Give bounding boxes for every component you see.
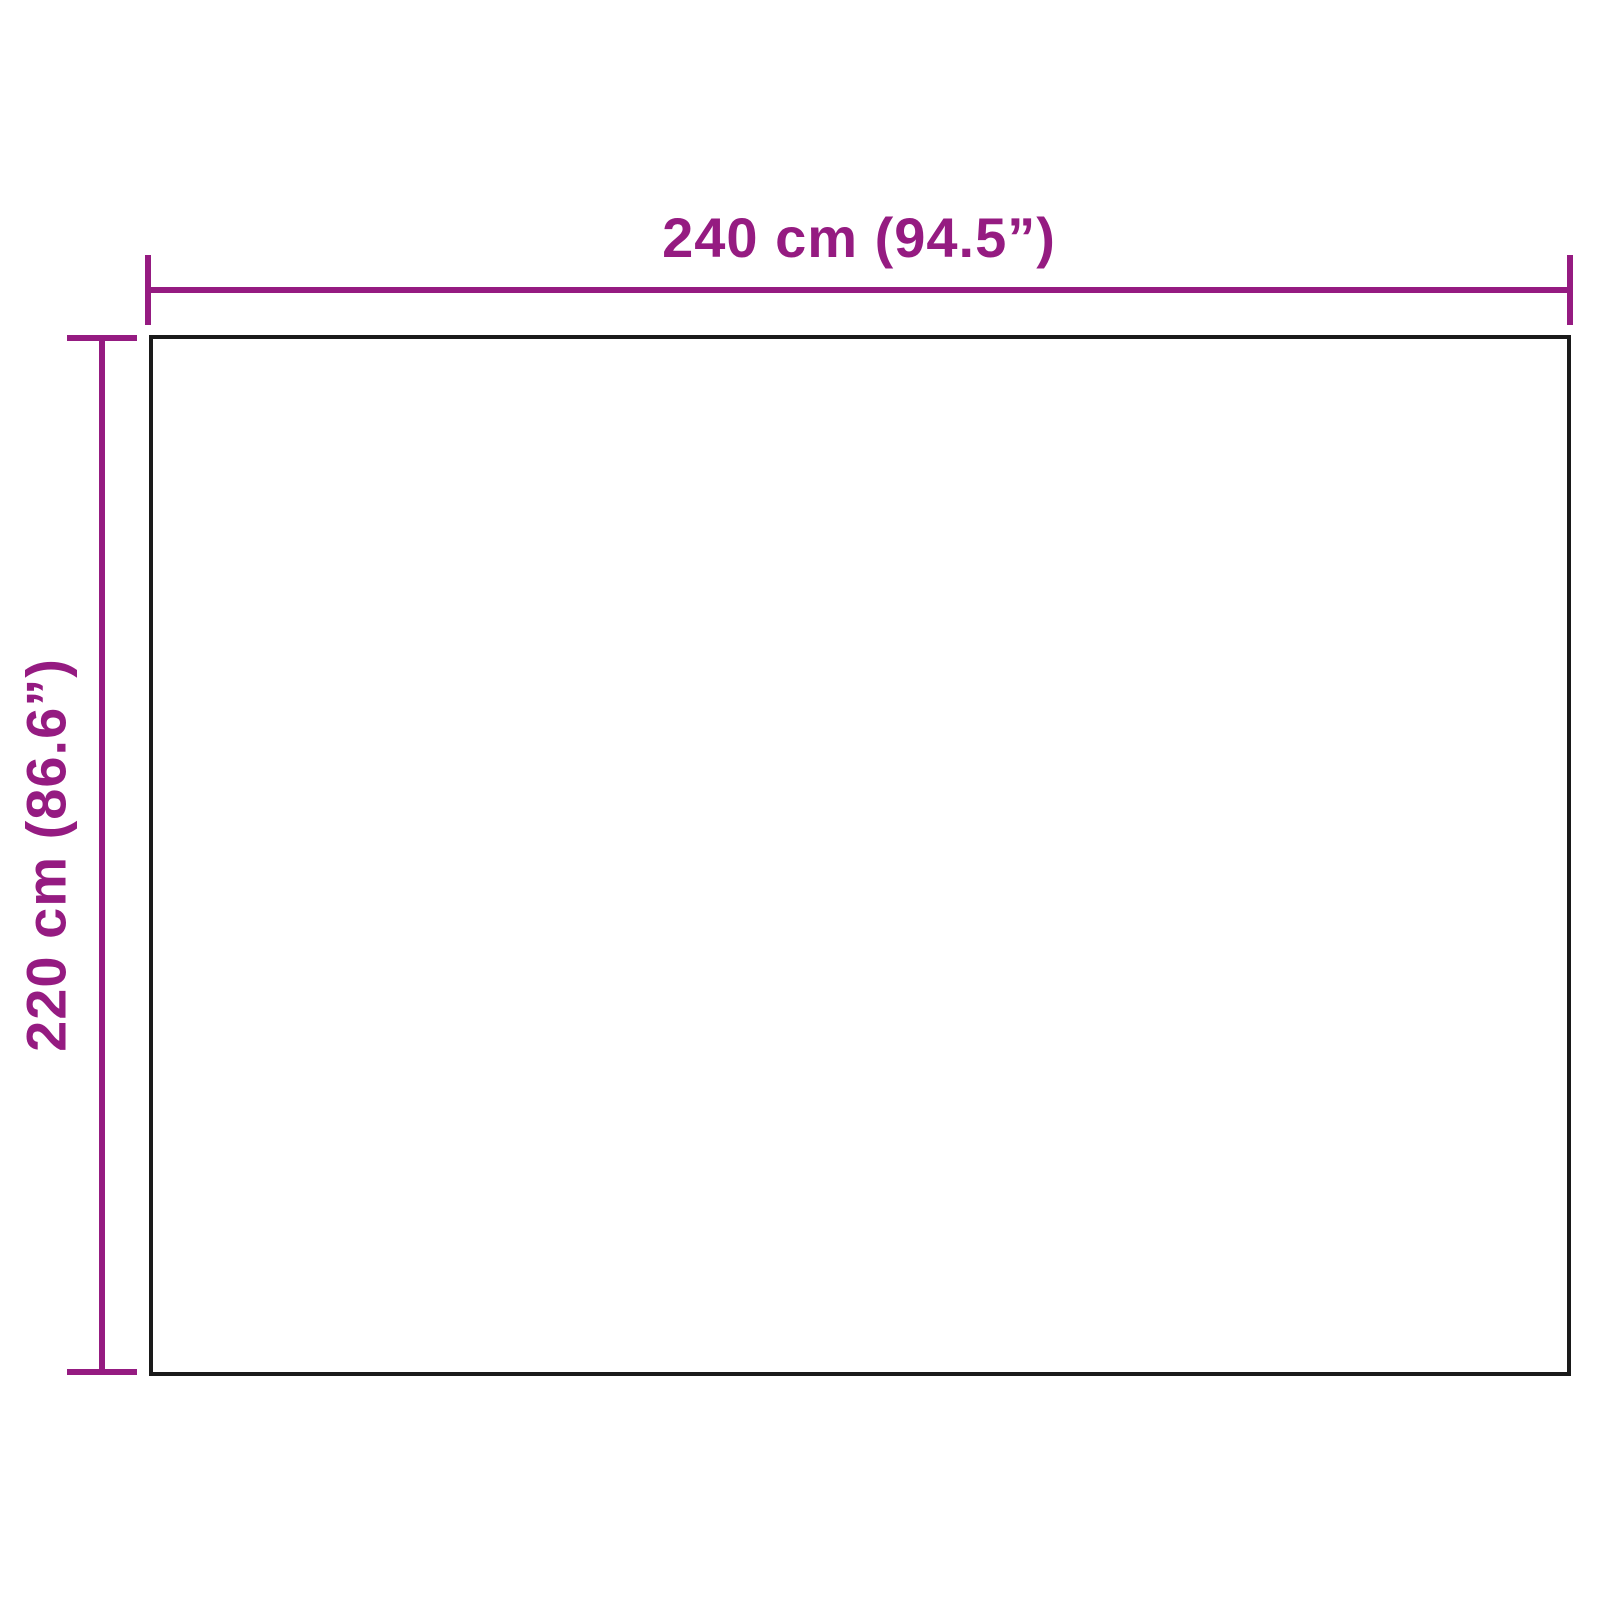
width-dimension-left-tick — [145, 255, 151, 325]
width-dimension-line — [145, 287, 1573, 293]
product-outline — [149, 335, 1571, 1376]
dimension-diagram: 240 cm (94.5”) 220 cm (86.6”) — [0, 0, 1600, 1600]
width-dimension-label: 240 cm (94.5”) — [145, 205, 1573, 270]
height-dimension-bottom-tick — [67, 1369, 137, 1375]
height-dimension-top-tick — [67, 335, 137, 341]
height-dimension-label: 220 cm (86.6”) — [14, 658, 79, 1052]
height-dimension-line — [99, 337, 105, 1375]
width-dimension-right-tick — [1567, 255, 1573, 325]
